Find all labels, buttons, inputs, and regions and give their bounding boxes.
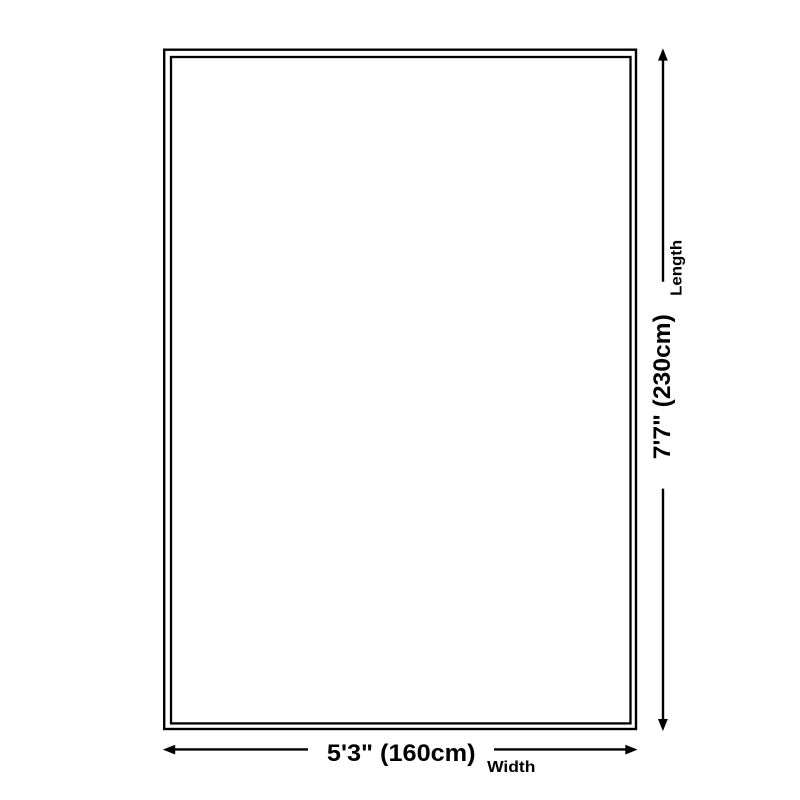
svg-text:5'3" (160cm): 5'3" (160cm) — [327, 740, 476, 767]
svg-text:7'7" (230cm): 7'7" (230cm) — [649, 314, 676, 459]
svg-text:Width: Width — [487, 759, 535, 776]
svg-text:Length: Length — [669, 240, 686, 296]
